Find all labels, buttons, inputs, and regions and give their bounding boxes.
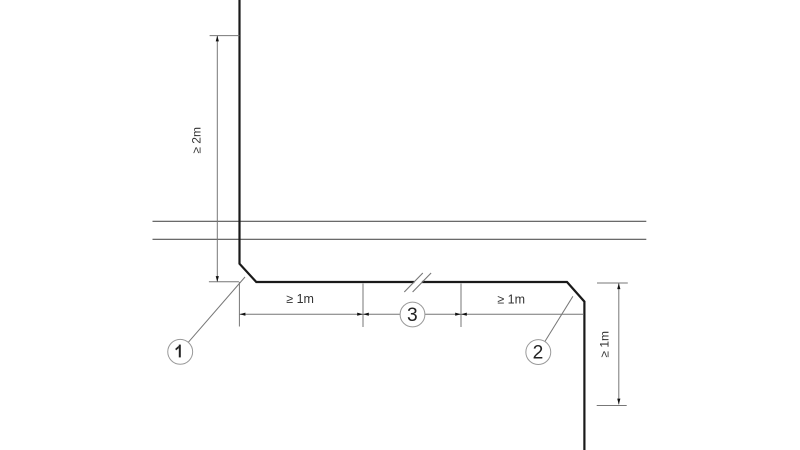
svg-text:2: 2 [533,342,544,363]
svg-text:≥ 1m: ≥ 1m [598,331,612,358]
svg-text:3: 3 [407,305,418,326]
svg-text:≥ 1m: ≥ 1m [286,292,314,306]
svg-text:≥ 1m: ≥ 1m [497,293,525,307]
svg-text:≥ 2m: ≥ 2m [190,127,204,154]
